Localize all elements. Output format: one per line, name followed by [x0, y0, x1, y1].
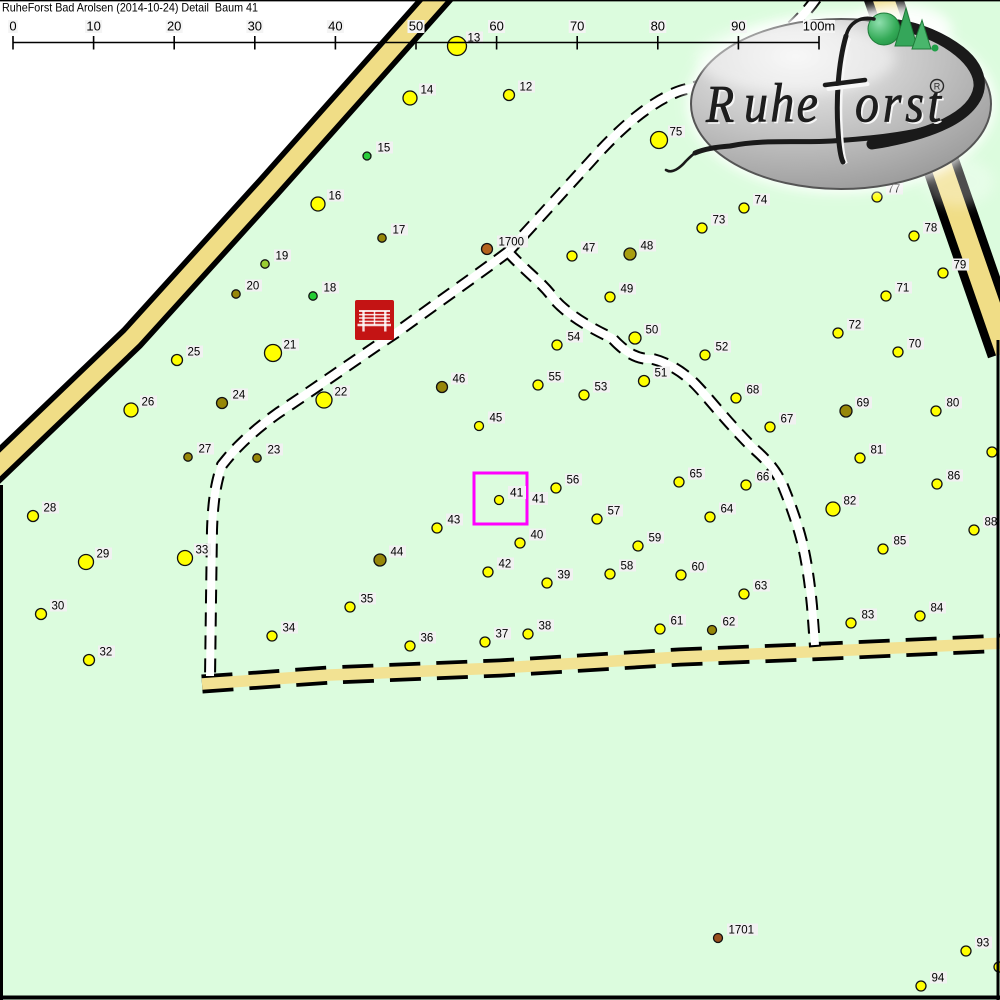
svg-text:41: 41: [532, 492, 546, 506]
svg-text:46: 46: [453, 374, 466, 386]
svg-text:72: 72: [849, 320, 862, 332]
svg-text:43: 43: [448, 515, 461, 527]
svg-text:100m: 100m: [803, 19, 836, 34]
svg-text:78: 78: [925, 223, 938, 235]
svg-text:22: 22: [335, 387, 348, 399]
svg-text:14: 14: [421, 85, 434, 97]
svg-text:75: 75: [670, 127, 683, 139]
svg-text:86: 86: [948, 471, 961, 483]
svg-text:81: 81: [871, 445, 884, 457]
svg-text:37: 37: [496, 629, 509, 641]
svg-text:80: 80: [947, 398, 960, 410]
svg-text:85: 85: [894, 536, 907, 548]
svg-text:57: 57: [608, 506, 621, 518]
svg-text:80: 80: [651, 19, 665, 34]
svg-text:51: 51: [655, 368, 668, 380]
svg-text:10: 10: [86, 19, 100, 34]
svg-text:66: 66: [757, 472, 770, 484]
svg-text:35: 35: [361, 594, 374, 606]
svg-text:32: 32: [100, 647, 113, 659]
svg-text:84: 84: [931, 603, 944, 615]
svg-text:12: 12: [520, 82, 533, 94]
svg-text:19: 19: [276, 251, 289, 263]
svg-text:50: 50: [646, 325, 659, 337]
svg-text:56: 56: [567, 475, 580, 487]
svg-text:21: 21: [284, 340, 297, 352]
svg-text:53: 53: [595, 382, 608, 394]
svg-text:59: 59: [649, 533, 662, 545]
svg-text:62: 62: [723, 617, 736, 629]
svg-text:R: R: [934, 82, 941, 92]
svg-text:15: 15: [378, 143, 391, 155]
svg-text:65: 65: [690, 469, 703, 481]
svg-text:69: 69: [857, 398, 870, 410]
svg-text:70: 70: [909, 339, 922, 351]
svg-text:83: 83: [862, 610, 875, 622]
svg-text:45: 45: [490, 413, 503, 425]
svg-text:93: 93: [977, 938, 990, 950]
svg-text:27: 27: [199, 444, 212, 456]
svg-text:1701: 1701: [729, 925, 755, 937]
svg-text:28: 28: [44, 503, 57, 515]
svg-text:36: 36: [421, 633, 434, 645]
svg-text:64: 64: [721, 504, 734, 516]
svg-text:88: 88: [985, 517, 998, 529]
svg-text:26: 26: [142, 397, 155, 409]
svg-text:R: R: [705, 74, 734, 133]
svg-text:63: 63: [755, 581, 768, 593]
svg-text:79: 79: [954, 260, 967, 272]
svg-text:82: 82: [844, 496, 857, 508]
svg-text:47: 47: [583, 243, 596, 255]
svg-text:68: 68: [747, 385, 760, 397]
svg-text:60: 60: [489, 19, 503, 34]
svg-text:23: 23: [268, 445, 281, 457]
svg-text:60: 60: [692, 562, 705, 574]
svg-text:44: 44: [391, 547, 404, 559]
svg-text:42: 42: [499, 559, 512, 571]
svg-text:RuheForst Bad Arolsen (2014-10: RuheForst Bad Arolsen (2014-10-24) Detai…: [2, 1, 258, 15]
svg-text:40: 40: [531, 530, 544, 542]
svg-text:20: 20: [247, 281, 260, 293]
svg-text:33: 33: [196, 545, 209, 557]
svg-text:29: 29: [97, 549, 110, 561]
svg-text:74: 74: [755, 195, 768, 207]
svg-text:30: 30: [52, 601, 65, 613]
svg-text:39: 39: [558, 570, 571, 582]
svg-text:30: 30: [248, 19, 262, 34]
svg-text:uhe: uhe: [744, 73, 818, 134]
svg-text:94: 94: [932, 973, 945, 985]
svg-text:24: 24: [233, 390, 246, 402]
svg-text:0: 0: [9, 19, 16, 34]
svg-text:52: 52: [716, 342, 729, 354]
svg-text:50: 50: [409, 19, 423, 34]
svg-text:25: 25: [188, 347, 201, 359]
svg-text:48: 48: [641, 241, 654, 253]
svg-text:1700: 1700: [499, 237, 525, 249]
svg-text:34: 34: [283, 623, 296, 635]
svg-text:20: 20: [167, 19, 181, 34]
svg-text:71: 71: [897, 283, 910, 295]
svg-text:90: 90: [731, 19, 745, 34]
svg-text:41: 41: [510, 486, 524, 500]
svg-text:18: 18: [324, 283, 337, 295]
svg-text:16: 16: [329, 191, 342, 203]
svg-text:17: 17: [393, 225, 406, 237]
svg-text:61: 61: [671, 616, 684, 628]
svg-text:40: 40: [328, 19, 342, 34]
svg-text:49: 49: [621, 284, 634, 296]
svg-text:55: 55: [549, 372, 562, 384]
svg-text:67: 67: [781, 414, 794, 426]
svg-text:38: 38: [539, 621, 552, 633]
svg-text:73: 73: [713, 215, 726, 227]
svg-text:54: 54: [568, 332, 581, 344]
svg-text:70: 70: [570, 19, 584, 34]
svg-text:58: 58: [621, 561, 634, 573]
